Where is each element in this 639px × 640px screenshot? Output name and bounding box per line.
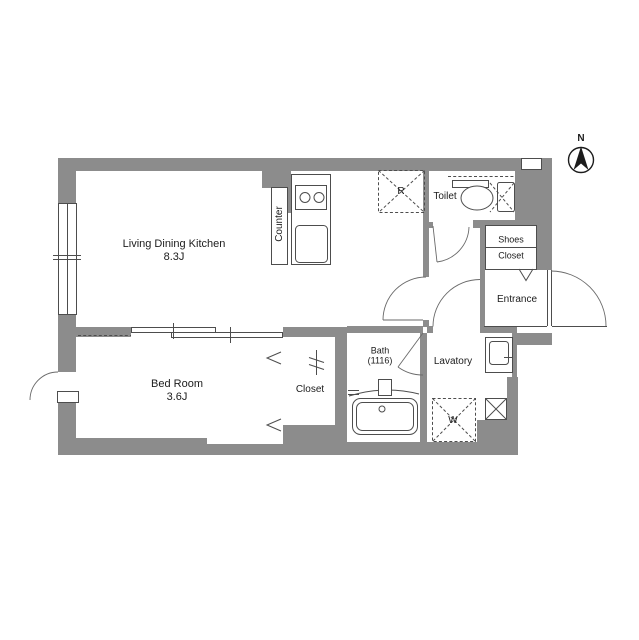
room-label-closet: Closet xyxy=(296,385,324,396)
room-label-entrance: Entrance xyxy=(497,295,537,306)
window-toilet xyxy=(522,159,542,170)
washer-label: W xyxy=(448,416,457,427)
counter-label: Counter xyxy=(275,206,286,242)
door-bedroom-balcony xyxy=(30,372,79,403)
kitchen-unit xyxy=(292,175,331,265)
room-label-ldk: Living Dining Kitchen xyxy=(123,239,226,251)
compass-icon xyxy=(569,147,594,173)
lavatory-sink xyxy=(486,338,514,373)
door-lavatory xyxy=(433,280,480,327)
window-ldk xyxy=(53,204,81,315)
room-label-shoes-closet-line2: Closet xyxy=(498,251,524,260)
door-toilet xyxy=(433,226,469,262)
door-ldk-hall xyxy=(383,277,426,320)
room-label-bedroom: Bed Room xyxy=(151,379,203,391)
closet-hanger-icon xyxy=(309,350,324,375)
compass-north-label: N xyxy=(577,134,584,145)
sink-icon xyxy=(296,226,328,263)
pipe-space xyxy=(486,399,507,420)
closet-opening-markers xyxy=(267,352,281,431)
stove-icon xyxy=(296,186,327,210)
room-label-toilet: Toilet xyxy=(433,192,456,203)
room-label-shoes-closet-line1: Shoes xyxy=(498,235,524,244)
bathtub xyxy=(348,380,419,435)
toilet-fixture xyxy=(448,177,515,213)
floor-plan: Living Dining Kitchen 8.3J Bed Room 3.6J… xyxy=(0,0,639,640)
room-size-bath: (1116) xyxy=(368,356,393,365)
room-size-ldk: 8.3J xyxy=(164,252,185,264)
door-bath xyxy=(398,333,423,375)
sliding-door-partition xyxy=(78,323,283,343)
shoes-closet-door-marker xyxy=(519,269,533,281)
refrigerator-label: R xyxy=(397,187,404,198)
room-label-lavatory: Lavatory xyxy=(434,357,472,368)
plan-linework xyxy=(0,0,639,640)
room-size-bedroom: 3.6J xyxy=(167,392,188,404)
